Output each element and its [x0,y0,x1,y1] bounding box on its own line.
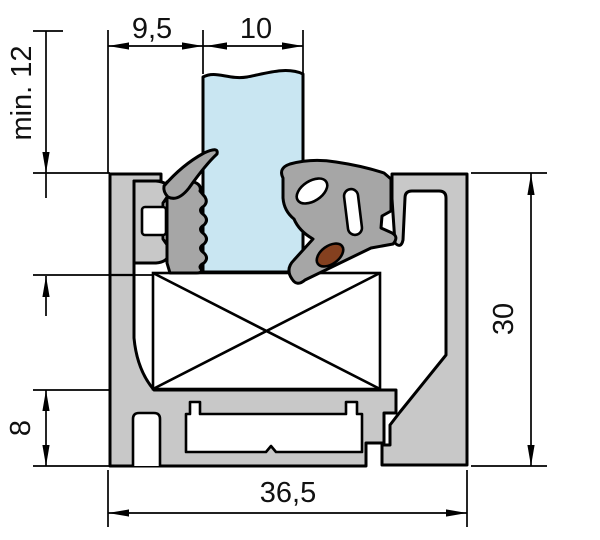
screw-channel [133,413,160,466]
arrow-down-min12 [42,152,49,173]
outer-glazing-gasket [282,160,396,283]
clamp-chamber [142,207,166,235]
frame-outer-wall [382,174,467,465]
arrow-up-8 [42,390,49,411]
arrow-up-30 [527,174,534,195]
dimension-label-glass-thickness: 10 [240,13,272,45]
dimension-label-bead-width: 9,5 [132,13,172,45]
arrow-right-10 [282,42,303,49]
dimension-label-profile-height: 30 [488,303,520,335]
thermal-insulation-zone [153,273,380,389]
arrow-down-30 [527,445,534,466]
arrow-left-9-5 [108,42,129,49]
dim-line-min12 [33,31,110,198]
arrow-down-8 [42,445,49,466]
dimension-label-profile-width: 36,5 [260,477,316,509]
arrow-left-10 [206,42,227,49]
drawing-canvas: 9,5 10 min. 12 30 8 36,5 [0,0,600,540]
arrow-left-36-5 [108,509,129,516]
arrow-up-rebate [42,276,49,297]
dimension-label-min-glass-cover: min. 12 [6,45,38,140]
dimension-label-base-height: 8 [5,420,37,436]
arrow-right-9-5 [182,42,203,49]
window-profile-cross-section: 9,5 10 min. 12 30 8 36,5 [0,0,600,540]
arrow-right-36-5 [446,509,467,516]
